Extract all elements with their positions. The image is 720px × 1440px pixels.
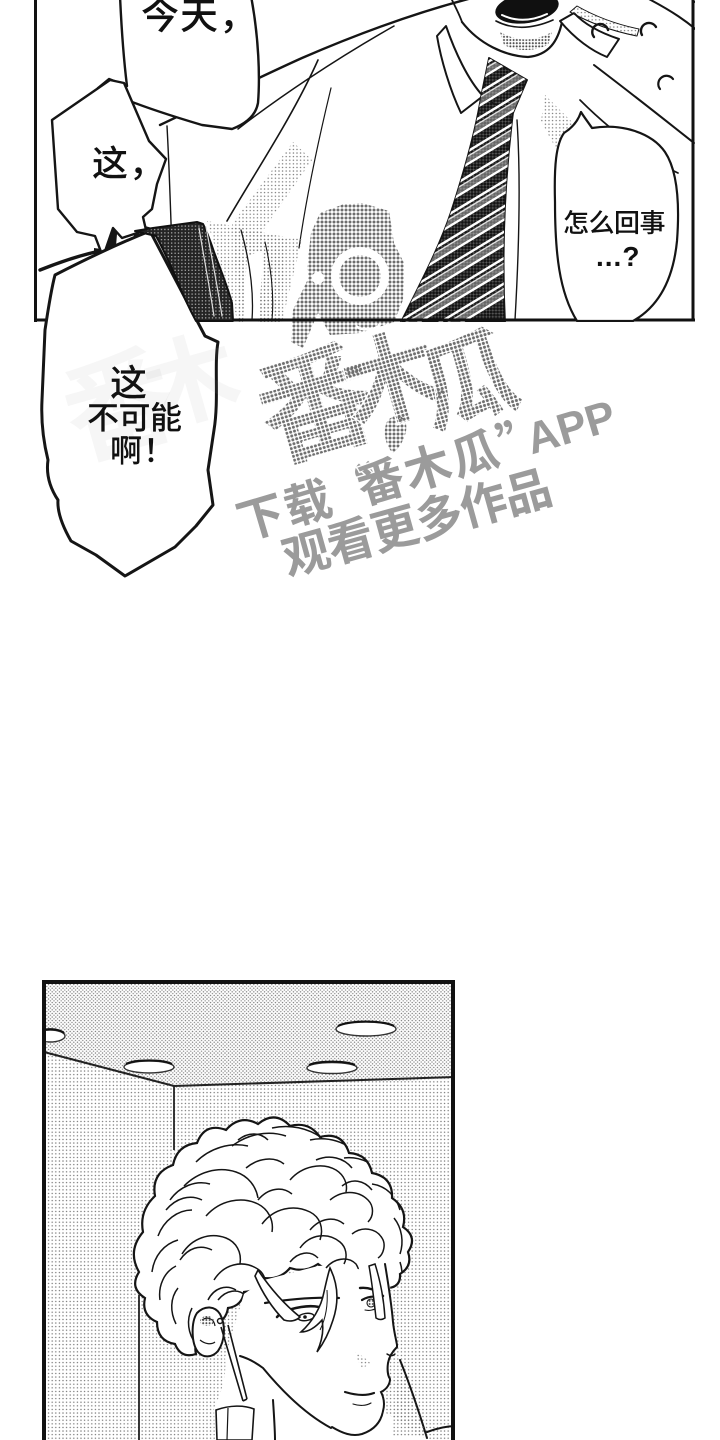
- svg-text:...?: ...?: [596, 241, 640, 272]
